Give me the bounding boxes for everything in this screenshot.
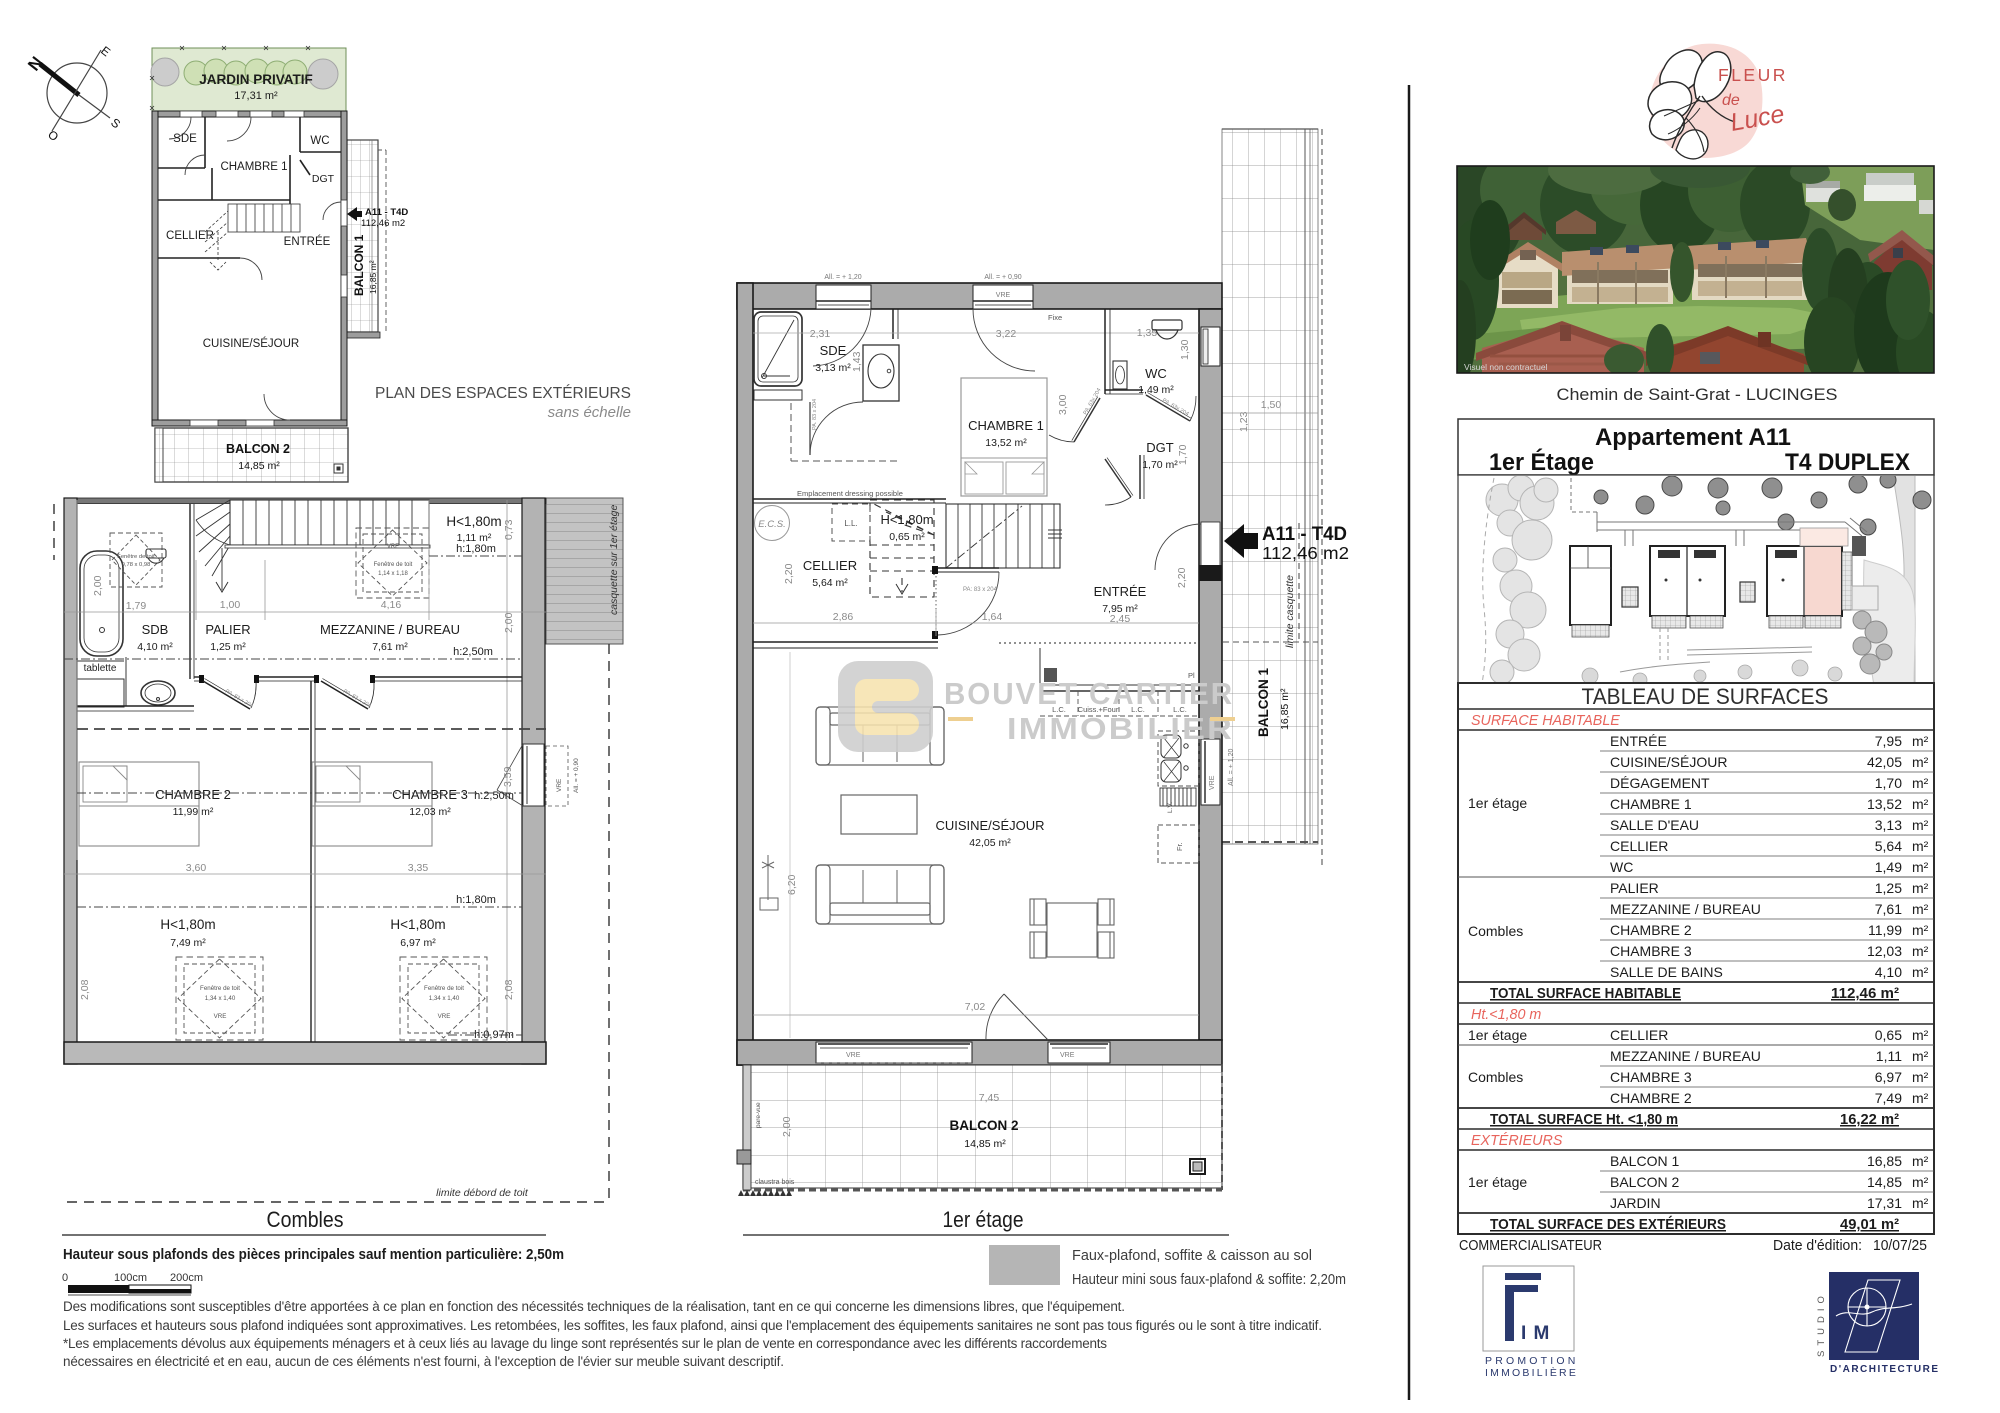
svg-text:m²: m² — [1912, 922, 1929, 938]
svg-text:m²: m² — [1912, 796, 1929, 812]
svg-text:1,14 x 1,18: 1,14 x 1,18 — [378, 571, 408, 577]
svg-text:JARDIN PRIVATIF: JARDIN PRIVATIF — [199, 72, 313, 87]
svg-text:H<1,80m: H<1,80m — [446, 514, 501, 529]
svg-text:14,85 m²: 14,85 m² — [964, 1138, 1006, 1150]
svg-text:CUISINE/SÉJOUR: CUISINE/SÉJOUR — [1610, 754, 1727, 770]
svg-text:tablette: tablette — [84, 663, 117, 674]
svg-text:3,13 m²: 3,13 m² — [815, 362, 851, 374]
svg-text:CUISINE/SÉJOUR: CUISINE/SÉJOUR — [935, 818, 1044, 833]
svg-text:13,52 m²: 13,52 m² — [985, 437, 1027, 449]
svg-text:All. = + 1,20: All. = + 1,20 — [824, 274, 861, 281]
svg-text:1,00: 1,00 — [220, 599, 241, 611]
svg-text:CHAMBRE 3: CHAMBRE 3 — [1610, 1069, 1692, 1085]
svg-text:h:1,80m: h:1,80m — [456, 543, 496, 555]
svg-text:PA. 63x 204: PA. 63x 204 — [1161, 398, 1190, 418]
svg-text:SURFACE HABITABLE: SURFACE HABITABLE — [1471, 713, 1620, 729]
svg-text:16,85: 16,85 — [1867, 1153, 1902, 1169]
svg-text:7,61 m²: 7,61 m² — [372, 641, 408, 653]
svg-text:SDE: SDE — [173, 133, 197, 145]
svg-text:IMMOBILIÈRE: IMMOBILIÈRE — [1485, 1366, 1578, 1379]
svg-text:S: S — [108, 115, 123, 131]
svg-text:Visuel non contractuel: Visuel non contractuel — [1464, 362, 1548, 372]
svg-text:m²: m² — [1912, 1027, 1929, 1043]
svg-text:PALIER: PALIER — [205, 622, 250, 637]
svg-text:BALCON 2: BALCON 2 — [1610, 1174, 1679, 1190]
svg-text:BALCON 2: BALCON 2 — [949, 1118, 1018, 1133]
svg-text:0: 0 — [62, 1272, 68, 1284]
svg-text:12,03 m²: 12,03 m² — [409, 806, 451, 818]
svg-text:PA. 83 x 204: PA. 83 x 204 — [812, 399, 818, 430]
svg-text:O: O — [45, 127, 61, 144]
svg-text:PROMOTION: PROMOTION — [1485, 1355, 1579, 1367]
svg-text:6,20: 6,20 — [786, 874, 798, 895]
svg-text:MEZZANINE / BUREAU: MEZZANINE / BUREAU — [320, 622, 460, 637]
svg-text:TOTAL SURFACE DES EXTÉRIEURS: TOTAL SURFACE DES EXTÉRIEURS — [1490, 1216, 1726, 1233]
svg-text:1,23: 1,23 — [1238, 411, 1250, 432]
svg-text:Fenêtre de toit: Fenêtre de toit — [424, 985, 464, 992]
svg-text:Fenêtre de toit: Fenêtre de toit — [374, 562, 413, 568]
svg-text:Fenêtre de toit: Fenêtre de toit — [200, 985, 240, 992]
svg-text:0,78 x 0,98: 0,78 x 0,98 — [122, 562, 151, 568]
svg-text:FLEUR: FLEUR — [1718, 65, 1788, 85]
svg-text:16,85 m²: 16,85 m² — [368, 260, 378, 294]
svg-text:CHAMBRE 2: CHAMBRE 2 — [1610, 1090, 1692, 1106]
svg-text:m²: m² — [1912, 964, 1929, 980]
svg-text:WC: WC — [1145, 366, 1167, 381]
svg-text:Des modifications sont suscept: Des modifications sont susceptibles d'êt… — [63, 1299, 1125, 1314]
svg-text:de: de — [1722, 92, 1740, 109]
svg-text:VRE: VRE — [1060, 1052, 1075, 1059]
svg-text:BALCON 1: BALCON 1 — [1610, 1153, 1679, 1169]
svg-text:VRE: VRE — [214, 1013, 227, 1020]
svg-text:sans échelle: sans échelle — [548, 404, 631, 421]
svg-text:Combles: Combles — [1468, 1069, 1523, 1085]
svg-text:ENTRÉE: ENTRÉE — [1610, 733, 1667, 749]
svg-text:CHAMBRE 2: CHAMBRE 2 — [155, 787, 231, 802]
svg-text:1er étage: 1er étage — [1468, 1174, 1527, 1190]
svg-text:SDE: SDE — [820, 343, 847, 358]
svg-text:112,46 m2: 112,46 m2 — [361, 218, 405, 229]
svg-text:Emplacement dressing possible: Emplacement dressing possible — [797, 489, 903, 498]
svg-text:claustra bois: claustra bois — [755, 1179, 795, 1186]
svg-text:m²: m² — [1912, 880, 1929, 896]
svg-text:STUDIO: STUDIO — [1816, 1291, 1827, 1357]
svg-text:h:1,80m: h:1,80m — [456, 894, 496, 906]
svg-text:112,46 m²: 112,46 m² — [1831, 985, 1899, 1002]
svg-text:1,64: 1,64 — [982, 611, 1003, 623]
svg-text:3,60: 3,60 — [186, 862, 207, 874]
svg-text:T4 DUPLEX: T4 DUPLEX — [1785, 449, 1910, 476]
svg-text:49,01 m²: 49,01 m² — [1840, 1216, 1899, 1233]
svg-text:Hauteur mini sous faux-plafond: Hauteur mini sous faux-plafond & soffite… — [1072, 1271, 1346, 1288]
svg-text:BOUVET CARTIER: BOUVET CARTIER — [944, 676, 1234, 711]
svg-text:limite casquette: limite casquette — [1284, 575, 1296, 648]
svg-text:2,08: 2,08 — [79, 979, 91, 1000]
svg-text:L.V.: L.V. — [1167, 802, 1174, 813]
svg-text:17,31: 17,31 — [1867, 1195, 1902, 1211]
svg-text:PA. 83 x 204: PA. 83 x 204 — [224, 689, 254, 710]
svg-text:DGT: DGT — [312, 173, 335, 185]
svg-text:CUISINE/SÉJOUR: CUISINE/SÉJOUR — [203, 337, 300, 350]
svg-text:m²: m² — [1912, 754, 1929, 770]
svg-text:6,97 m²: 6,97 m² — [400, 937, 436, 949]
svg-text:1er étage: 1er étage — [943, 1207, 1024, 1232]
svg-text:m²: m² — [1912, 1069, 1929, 1085]
svg-text:m²: m² — [1912, 775, 1929, 791]
svg-text:3,59: 3,59 — [502, 766, 514, 787]
svg-text:3,35: 3,35 — [408, 862, 429, 874]
svg-text:All. = + 0,90: All. = + 0,90 — [984, 274, 1021, 281]
svg-text:I M: I M — [1521, 1323, 1550, 1344]
svg-text:CELLIER: CELLIER — [1610, 1027, 1668, 1043]
svg-text:A11 - T4D: A11 - T4D — [365, 207, 408, 218]
svg-text:1,34 x 1,40: 1,34 x 1,40 — [205, 995, 236, 1002]
svg-text:Fixe: Fixe — [1048, 313, 1062, 322]
svg-text:ENTRÉE: ENTRÉE — [284, 235, 331, 248]
svg-text:m²: m² — [1912, 817, 1929, 833]
svg-text:TOTAL SURFACE HABITABLE: TOTAL SURFACE HABITABLE — [1490, 985, 1681, 1002]
svg-text:m²: m² — [1912, 901, 1929, 917]
svg-text:All. = + 0,90: All. = + 0,90 — [573, 758, 580, 793]
svg-text:1,70: 1,70 — [1875, 775, 1902, 791]
svg-text:D'ARCHITECTURE: D'ARCHITECTURE — [1830, 1364, 1940, 1375]
svg-text:5,64 m²: 5,64 m² — [812, 577, 848, 589]
svg-text:2,00: 2,00 — [92, 575, 104, 596]
svg-text:Faux-plafond, soffite & caisso: Faux-plafond, soffite & caisson au sol — [1072, 1247, 1312, 1264]
svg-text:m²: m² — [1912, 1048, 1929, 1064]
svg-text:11,99 m²: 11,99 m² — [173, 806, 214, 818]
svg-text:CHAMBRE 1: CHAMBRE 1 — [1610, 796, 1692, 812]
svg-text:m²: m² — [1912, 859, 1929, 875]
svg-text:H<1,80m: H<1,80m — [880, 512, 933, 527]
svg-text:7,45: 7,45 — [979, 1092, 1000, 1104]
svg-text:42,05: 42,05 — [1867, 754, 1902, 770]
svg-text:Ht.<1,80 m: Ht.<1,80 m — [1471, 1007, 1541, 1023]
svg-text:2,08: 2,08 — [503, 979, 515, 1000]
svg-text:L.L.: L.L. — [844, 519, 857, 528]
svg-text:1,49 m²: 1,49 m² — [1138, 384, 1174, 396]
svg-text:Les surfaces et hauteurs sous: Les surfaces et hauteurs sous plafond in… — [63, 1318, 1322, 1333]
svg-text:5,64: 5,64 — [1875, 838, 1902, 854]
svg-text:VRE: VRE — [387, 544, 399, 550]
svg-text:A11 - T4D: A11 - T4D — [1262, 524, 1347, 545]
svg-text:10/07/25: 10/07/25 — [1873, 1238, 1927, 1254]
svg-text:7,95: 7,95 — [1875, 733, 1902, 749]
svg-text:Appartement A11: Appartement A11 — [1595, 424, 1791, 451]
svg-text:BALCON 2: BALCON 2 — [226, 442, 290, 456]
svg-text:Date d'édition:: Date d'édition: — [1773, 1238, 1862, 1254]
svg-text:7,49 m²: 7,49 m² — [170, 937, 206, 949]
svg-text:3,00: 3,00 — [1057, 394, 1069, 415]
svg-text:SALLE D'EAU: SALLE D'EAU — [1610, 817, 1699, 833]
svg-text:1,43: 1,43 — [851, 351, 863, 372]
svg-text:1,34 x 1,40: 1,34 x 1,40 — [429, 995, 460, 1002]
svg-text:16,85 m²: 16,85 m² — [1279, 688, 1291, 730]
svg-text:COMMERCIALISATEUR: COMMERCIALISATEUR — [1459, 1238, 1602, 1254]
svg-text:E: E — [98, 43, 113, 59]
svg-text:VRE: VRE — [1209, 775, 1216, 790]
svg-text:H<1,80m: H<1,80m — [160, 917, 215, 932]
svg-text:4,16: 4,16 — [381, 599, 402, 611]
svg-text:CHAMBRE 1: CHAMBRE 1 — [220, 161, 287, 173]
svg-text:1,79: 1,79 — [126, 600, 147, 612]
svg-text:SDB: SDB — [142, 622, 169, 637]
svg-text:17,31 m²: 17,31 m² — [234, 90, 278, 102]
svg-text:2,00: 2,00 — [503, 612, 515, 633]
svg-text:100cm: 100cm — [114, 1272, 147, 1284]
svg-text:ENTRÉE: ENTRÉE — [1094, 584, 1147, 599]
svg-text:12,03: 12,03 — [1867, 943, 1902, 959]
svg-text:Chemin de Saint-Grat - LUCINGE: Chemin de Saint-Grat - LUCINGES — [1557, 385, 1838, 404]
svg-text:2,45: 2,45 — [1110, 613, 1131, 625]
svg-text:CELLIER: CELLIER — [1610, 838, 1668, 854]
svg-text:IMMOBILIER: IMMOBILIER — [1007, 711, 1234, 746]
svg-text:CHAMBRE 1: CHAMBRE 1 — [968, 418, 1044, 433]
svg-text:N: N — [24, 53, 47, 74]
svg-text:m²: m² — [1912, 1153, 1929, 1169]
svg-text:EXTÉRIEURS: EXTÉRIEURS — [1471, 1132, 1563, 1149]
svg-text:VRE: VRE — [438, 1013, 451, 1020]
svg-text:1er étage: 1er étage — [1468, 795, 1527, 811]
svg-text:nécessaires en électricité et: nécessaires en électricité et en eau, au… — [63, 1354, 784, 1369]
svg-text:CHAMBRE 3: CHAMBRE 3 — [1610, 943, 1692, 959]
svg-text:6,97: 6,97 — [1875, 1069, 1902, 1085]
svg-text:2,31: 2,31 — [810, 328, 831, 340]
svg-text:PLAN DES ESPACES EXTÉRIEURS: PLAN DES ESPACES EXTÉRIEURS — [375, 383, 631, 402]
svg-text:1,35: 1,35 — [1137, 327, 1158, 339]
svg-text:4,10: 4,10 — [1875, 964, 1902, 980]
svg-text:VRE: VRE — [556, 778, 563, 792]
svg-text:Hauteur sous plafonds des pièc: Hauteur sous plafonds des pièces princip… — [63, 1246, 564, 1263]
svg-text:0,65: 0,65 — [1875, 1027, 1902, 1043]
svg-text:h:2,50m: h:2,50m — [474, 790, 514, 802]
svg-text:DGT: DGT — [1146, 440, 1174, 455]
svg-text:1,70: 1,70 — [1177, 444, 1189, 465]
svg-text:pare-vue: pare-vue — [755, 1102, 762, 1128]
svg-text:42,05 m²: 42,05 m² — [969, 837, 1011, 849]
svg-text:H<1,80m: H<1,80m — [390, 917, 445, 932]
svg-text:CHAMBRE 2: CHAMBRE 2 — [1610, 922, 1692, 938]
svg-text:JARDIN: JARDIN — [1610, 1195, 1661, 1211]
svg-text:m²: m² — [1912, 1195, 1929, 1211]
svg-text:14,85: 14,85 — [1867, 1174, 1902, 1190]
svg-text:1,50: 1,50 — [1261, 399, 1282, 411]
svg-text:3,22: 3,22 — [996, 328, 1017, 340]
svg-text:m²: m² — [1912, 838, 1929, 854]
svg-text:TABLEAU DE SURFACES: TABLEAU DE SURFACES — [1582, 684, 1829, 709]
svg-text:m²: m² — [1912, 1090, 1929, 1106]
svg-text:m²: m² — [1912, 1174, 1929, 1190]
svg-text:VRE: VRE — [996, 292, 1011, 299]
svg-text:Combles: Combles — [267, 1207, 344, 1232]
svg-text:200cm: 200cm — [170, 1272, 203, 1284]
svg-text:Combles: Combles — [1468, 923, 1523, 939]
svg-text:WC: WC — [310, 135, 329, 147]
svg-text:2,20: 2,20 — [1176, 567, 1188, 588]
svg-text:2,00: 2,00 — [781, 1116, 793, 1137]
svg-text:11,99: 11,99 — [1868, 922, 1902, 938]
svg-text:BALCON 1: BALCON 1 — [1256, 668, 1271, 737]
svg-text:Fenêtre de toit: Fenêtre de toit — [117, 554, 155, 560]
svg-text:16,22 m²: 16,22 m² — [1840, 1111, 1899, 1128]
svg-text:PALIER: PALIER — [1610, 880, 1659, 896]
svg-text:7,61: 7,61 — [1875, 901, 1902, 917]
svg-text:1er Étage: 1er Étage — [1489, 448, 1594, 476]
svg-text:MEZZANINE / BUREAU: MEZZANINE / BUREAU — [1610, 1048, 1761, 1064]
svg-text:14,85 m²: 14,85 m² — [238, 460, 280, 472]
svg-text:m²: m² — [1912, 943, 1929, 959]
svg-text:DÉGAGEMENT: DÉGAGEMENT — [1610, 775, 1710, 791]
svg-text:BALCON 1: BALCON 1 — [352, 234, 366, 296]
svg-text:2,86: 2,86 — [833, 611, 854, 623]
svg-text:7,49: 7,49 — [1875, 1090, 1902, 1106]
svg-text:1,30: 1,30 — [1179, 339, 1191, 360]
svg-text:1er étage: 1er étage — [1468, 1027, 1527, 1043]
svg-text:0,73: 0,73 — [503, 519, 515, 540]
svg-text:PA. 83 x 204: PA. 83 x 204 — [342, 689, 372, 710]
svg-text:CELLIER: CELLIER — [166, 230, 214, 242]
svg-text:4,10 m²: 4,10 m² — [137, 641, 173, 653]
svg-text:PA: 83 x 204: PA: 83 x 204 — [963, 587, 998, 593]
svg-text:0,65 m²: 0,65 m² — [889, 531, 925, 543]
svg-text:1,25: 1,25 — [1875, 880, 1902, 896]
svg-text:E.C.S.: E.C.S. — [758, 519, 785, 530]
svg-text:limite débord de toit: limite débord de toit — [436, 1187, 529, 1199]
svg-text:7,02: 7,02 — [965, 1001, 986, 1013]
svg-text:2,20: 2,20 — [783, 563, 795, 584]
svg-text:SALLE DE BAINS: SALLE DE BAINS — [1610, 964, 1723, 980]
svg-text:1,25 m²: 1,25 m² — [210, 641, 246, 653]
svg-text:1,11: 1,11 — [1876, 1048, 1902, 1064]
svg-text:112,46 m2: 112,46 m2 — [1262, 543, 1349, 563]
svg-text:13,52: 13,52 — [1867, 796, 1902, 812]
svg-text:h:2,50m: h:2,50m — [453, 646, 493, 658]
svg-text:m²: m² — [1912, 733, 1929, 749]
svg-text:1,70 m²: 1,70 m² — [1142, 459, 1178, 471]
svg-text:CELLIER: CELLIER — [803, 558, 857, 573]
svg-text:MEZZANINE / BUREAU: MEZZANINE / BUREAU — [1610, 901, 1761, 917]
svg-text:CHAMBRE 3: CHAMBRE 3 — [392, 787, 468, 802]
svg-text:TOTAL SURFACE Ht. <1,80 m: TOTAL SURFACE Ht. <1,80 m — [1490, 1111, 1678, 1128]
svg-text:*Les emplacements dévolus aux: *Les emplacements dévolus aux équipement… — [63, 1336, 1107, 1351]
svg-text:casquette sur 1er étage: casquette sur 1er étage — [608, 505, 620, 615]
svg-text:1,49: 1,49 — [1875, 859, 1902, 875]
svg-text:VRE: VRE — [846, 1052, 861, 1059]
svg-text:3,13: 3,13 — [1875, 817, 1902, 833]
svg-text:Fr.: Fr. — [1175, 842, 1184, 851]
svg-text:All. = + 1,20: All. = + 1,20 — [1228, 749, 1235, 786]
svg-text:WC: WC — [1610, 859, 1633, 875]
